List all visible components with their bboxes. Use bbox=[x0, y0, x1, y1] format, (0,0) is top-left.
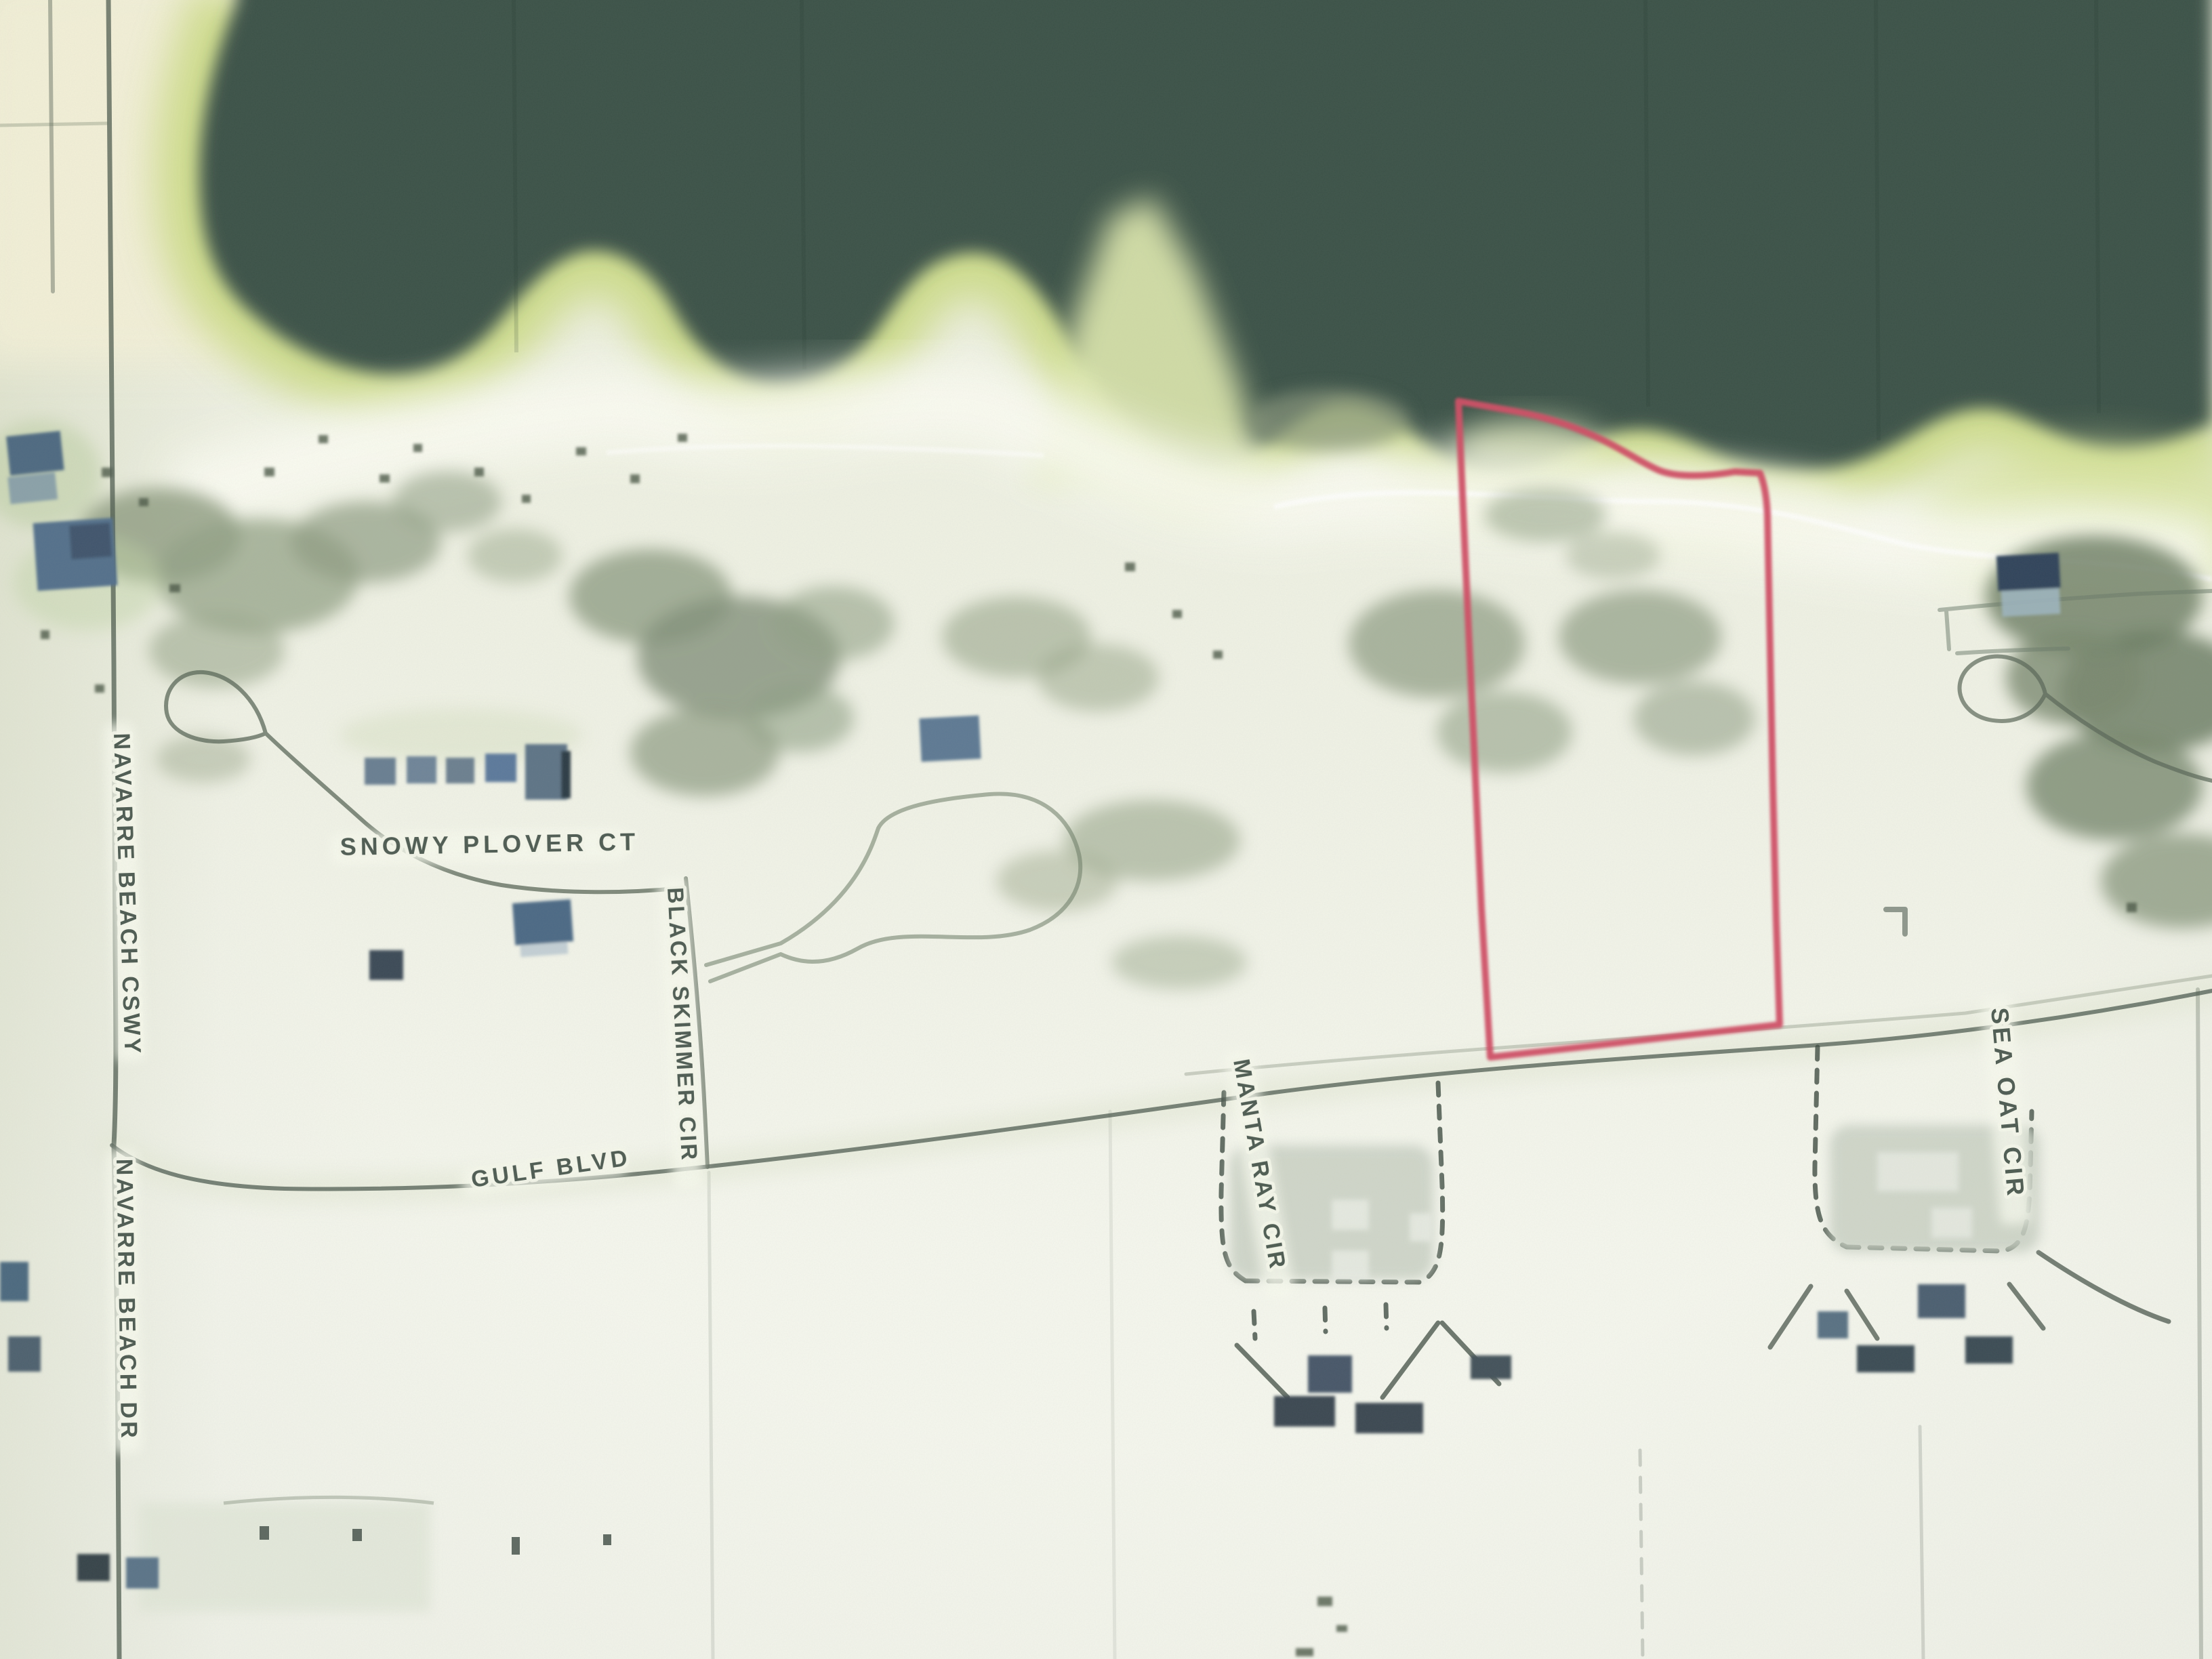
aerial-map-photo: NAVARRE BEACH CSWY NAVARRE BEACH DR SNOW… bbox=[0, 0, 2212, 1659]
photo-grain-overlay bbox=[0, 0, 2212, 1659]
map-canvas: NAVARRE BEACH CSWY NAVARRE BEACH DR SNOW… bbox=[0, 0, 2212, 1659]
